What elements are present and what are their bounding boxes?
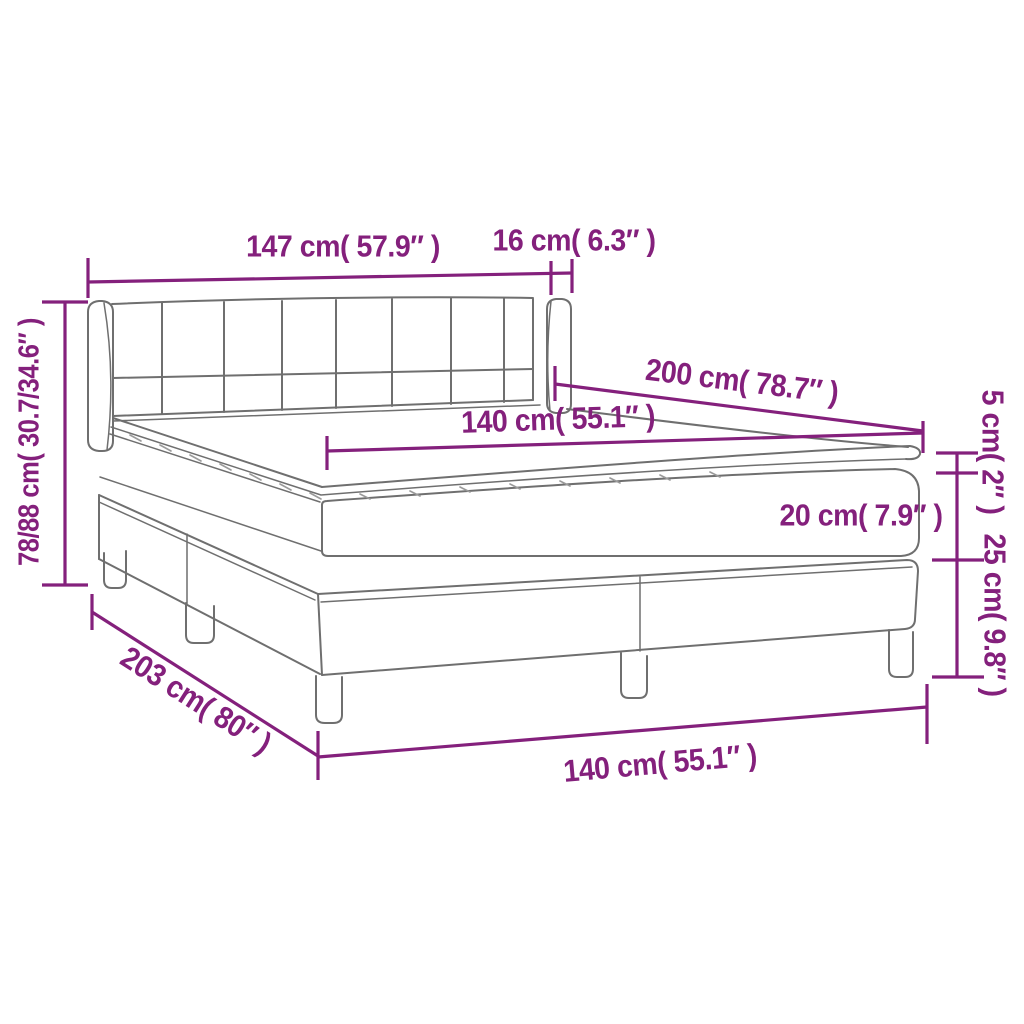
dimension-label-headboard-side-depth: 16 cm( 6.3″ ) <box>492 225 655 256</box>
dimension-label-overall-height: 78/88 cm( 30.7/34.6″ ) <box>16 318 45 566</box>
dimension-label-mattress-width: 140 cm( 55.1″ ) <box>461 400 656 438</box>
dimension-diagram: 147 cm( 57.9″ ) 16 cm( 6.3″ ) 200 cm( 78… <box>0 0 1024 1024</box>
zipper-hatch-marks <box>130 435 720 499</box>
dimension-label-mattress-thickness: 20 cm( 7.9″ ) <box>779 500 942 531</box>
dimension-label-base-height: 25 cm( 9.8″ ) <box>980 533 1011 696</box>
dimension-label-topper-thickness: 5 cm( 2″ ) <box>978 390 1009 515</box>
dimension-label-headboard-width: 147 cm( 57.9″ ) <box>246 231 440 262</box>
